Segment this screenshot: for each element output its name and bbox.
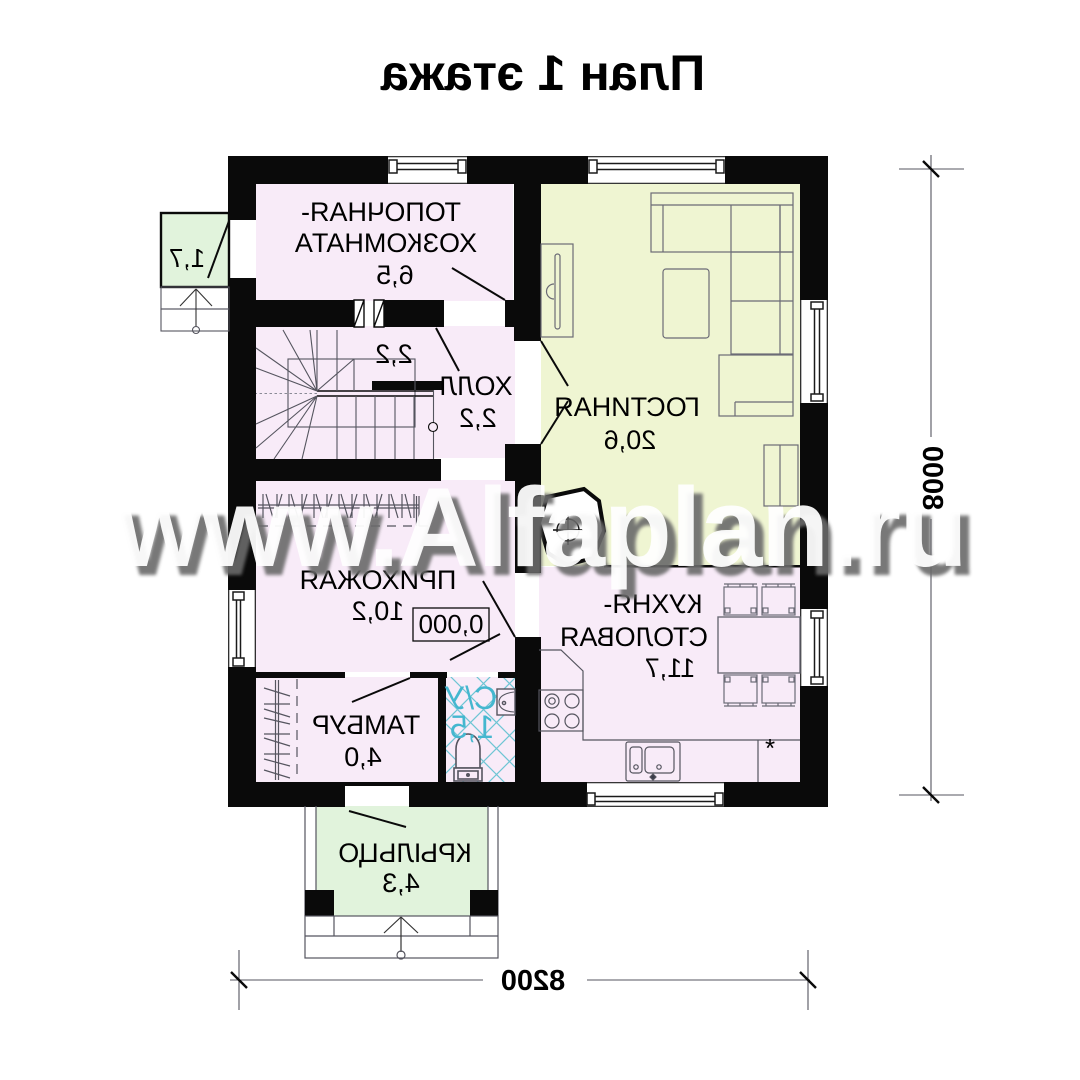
svg-text:КРЫЛЬЦО: КРЫЛЬЦО: [338, 838, 471, 868]
svg-text:www.Alfaplan.ru: www.Alfaplan.ru: [115, 465, 967, 590]
svg-text:ТОПОЧНАЯ-: ТОПОЧНАЯ-: [301, 197, 461, 227]
svg-text:ТАМБУР: ТАМБУР: [312, 710, 420, 740]
svg-text:План 1 этажа: План 1 этажа: [380, 45, 706, 101]
svg-text:*: *: [765, 733, 775, 763]
svg-text:СТОЛОВАЯ: СТОЛОВАЯ: [560, 622, 708, 652]
svg-text:1,7: 1,7: [169, 243, 205, 273]
svg-text:ХОЛЛ: ХОЛЛ: [439, 371, 512, 401]
svg-text:11,7: 11,7: [645, 653, 696, 683]
svg-text:2,2: 2,2: [459, 403, 497, 433]
svg-text:10,2: 10,2: [352, 596, 405, 626]
svg-text:ГОСТИНАЯ: ГОСТИНАЯ: [554, 392, 700, 422]
svg-text:4,3: 4,3: [382, 868, 420, 898]
svg-text:4,0: 4,0: [344, 742, 382, 772]
svg-text:0,000: 0,000: [418, 609, 483, 639]
svg-text:ХОЗКОМНАТА: ХОЗКОМНАТА: [295, 228, 477, 258]
svg-text:1,5: 1,5: [450, 709, 494, 745]
svg-text:8200: 8200: [501, 965, 566, 997]
svg-text:6,5: 6,5: [376, 260, 414, 290]
svg-text:2,2: 2,2: [375, 339, 413, 369]
svg-text:20,6: 20,6: [604, 425, 657, 455]
